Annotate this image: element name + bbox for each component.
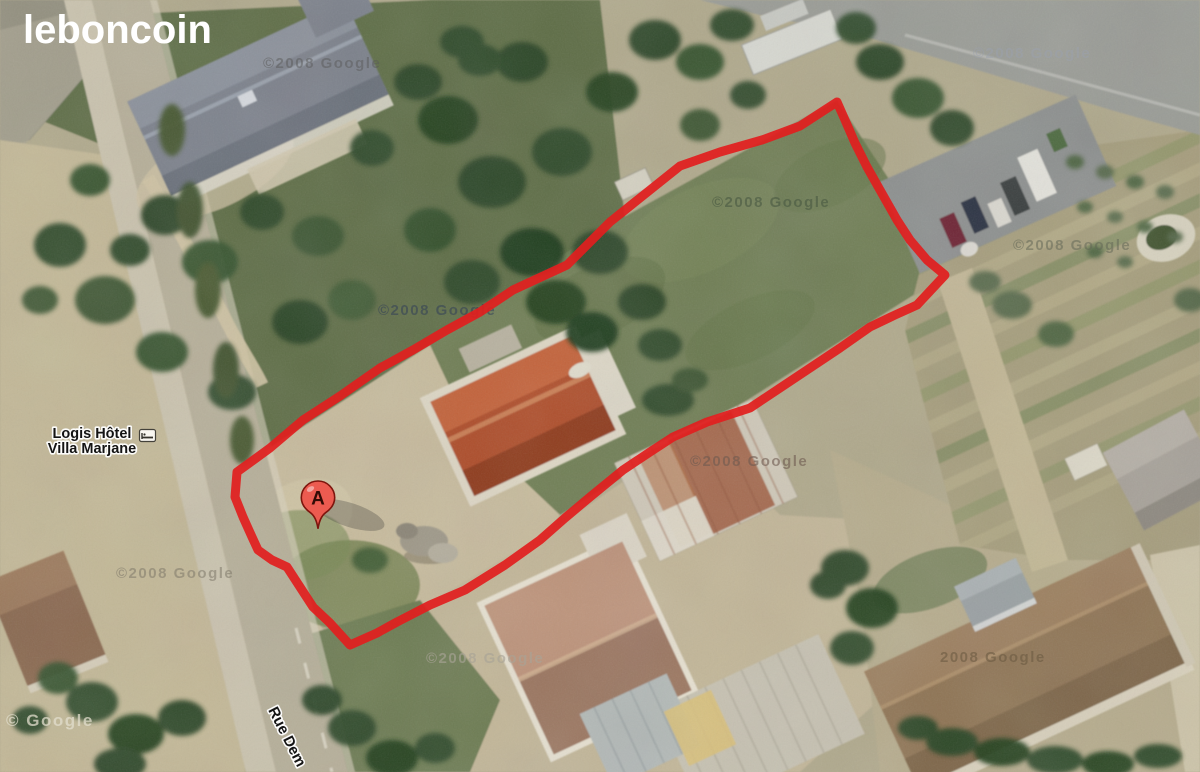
watermark: ©2008 Google — [690, 453, 808, 470]
watermark: ©2008 Google — [263, 55, 381, 72]
watermark: ©2008 Google — [973, 45, 1091, 62]
satellite-imagery: ©2008 Google ©2008 Google ©2008 Google ©… — [0, 0, 1200, 772]
poi-label-line1: Logis Hôtel — [53, 426, 132, 442]
watermark: ©2008 Google — [1013, 237, 1131, 254]
leboncoin-logo: leboncoin — [23, 10, 212, 50]
watermark: ©2008 Google — [712, 194, 830, 211]
lodging-bed-icon — [140, 430, 156, 442]
poi-label-line2: Villa Marjane — [48, 441, 136, 457]
watermark: 2008 Google — [940, 649, 1046, 666]
watermark: ©2008 Google — [426, 650, 544, 667]
listing-satellite-photo: ©2008 Google ©2008 Google ©2008 Google ©… — [0, 0, 1200, 772]
marker-letter: A — [311, 489, 325, 510]
watermark: ©2008 Google — [116, 565, 234, 582]
watermark: © Google — [6, 711, 94, 730]
